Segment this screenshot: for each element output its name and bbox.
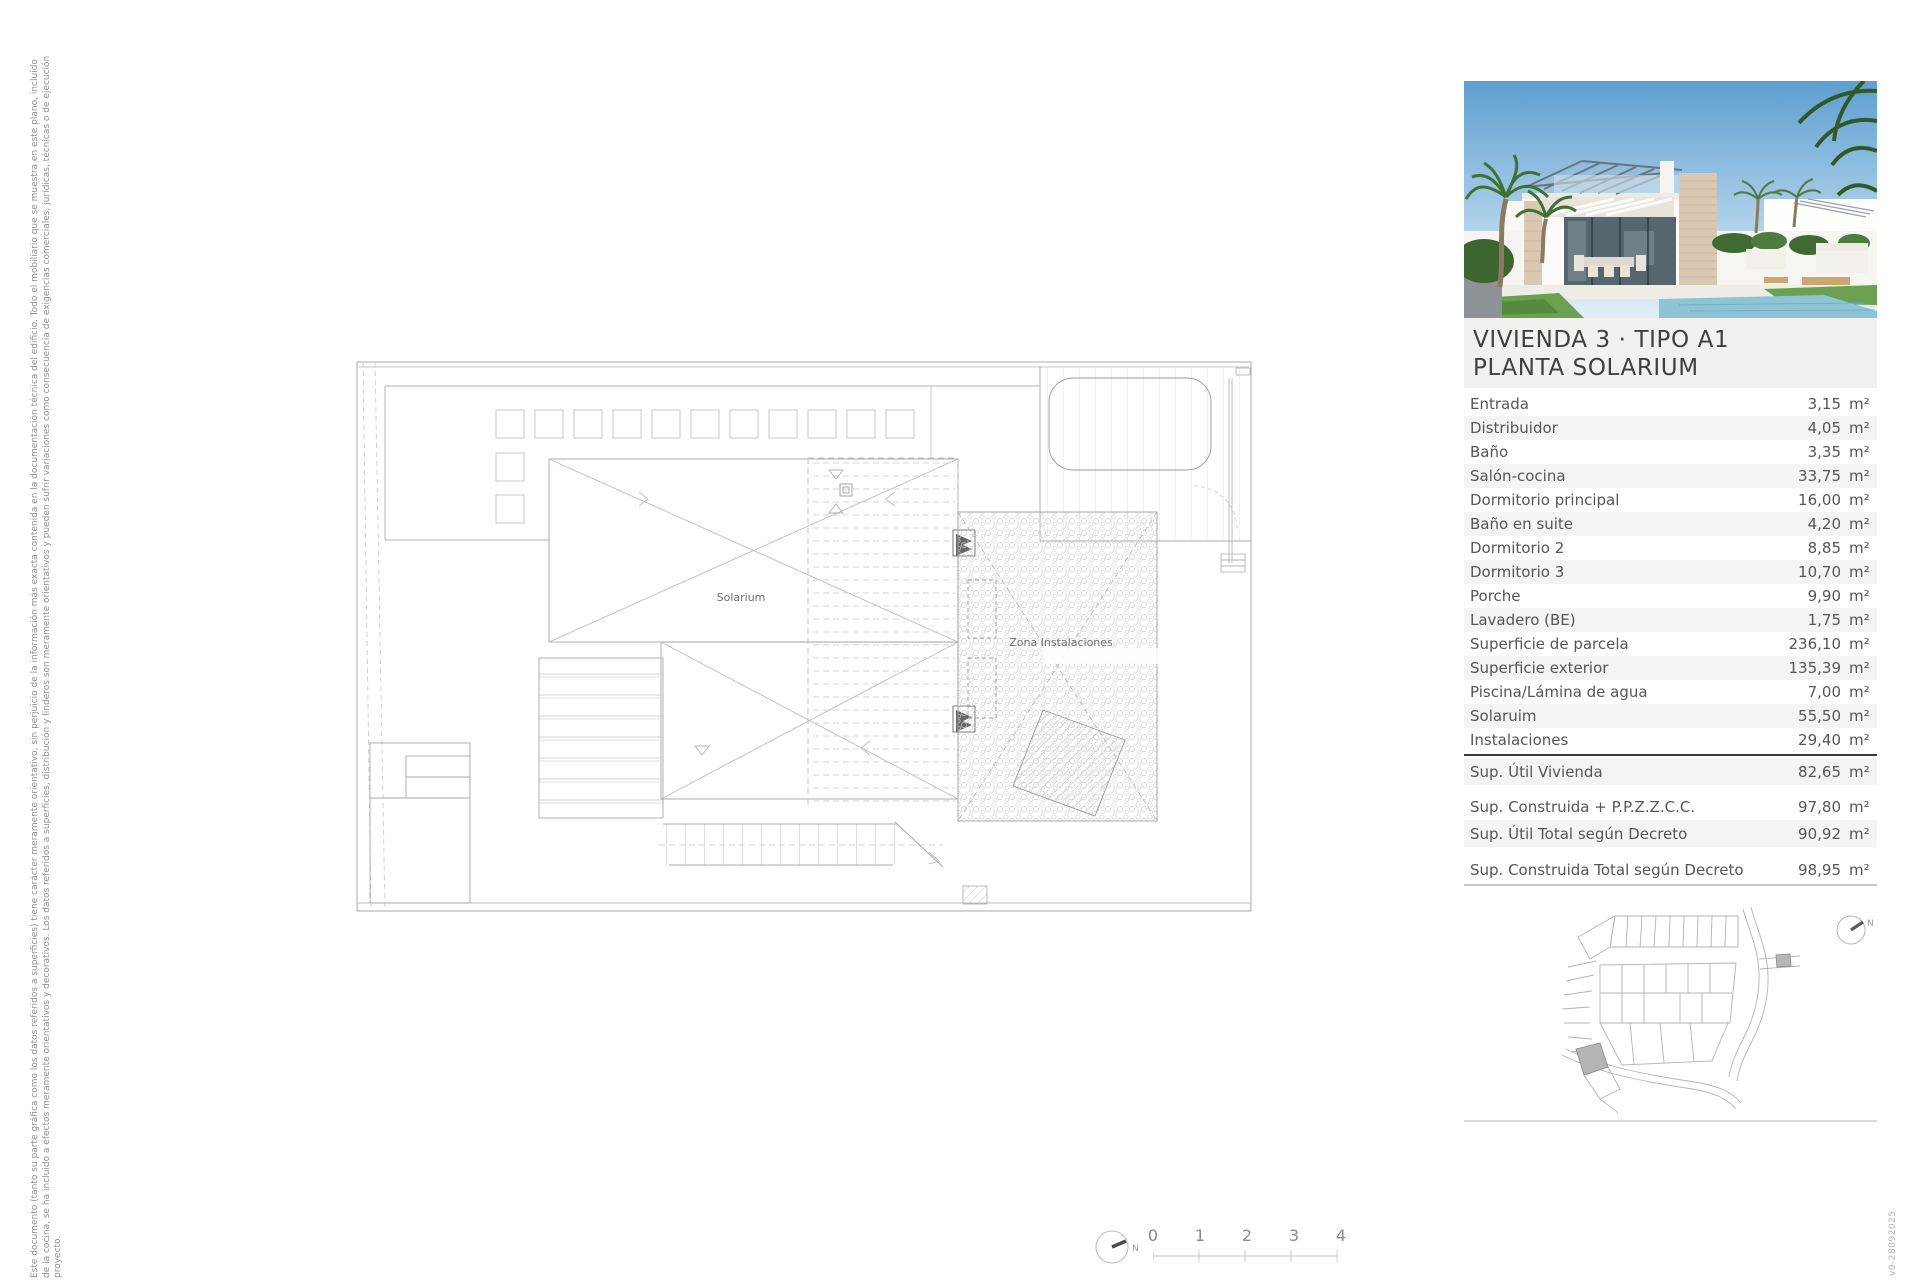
area-lbl: Sup. Construida + P.P.Z.Z.C.C.: [1470, 798, 1775, 816]
plan-title-block: VIVIENDA 3 · TIPO A1 PLANTA SOLARIUM: [1464, 318, 1877, 388]
north-compass-icon: N: [1837, 916, 1874, 944]
area-row: Baño3,35m²: [1464, 440, 1877, 464]
area-val: 3,15: [1775, 395, 1841, 413]
area-unit: m²: [1849, 861, 1873, 879]
area-lbl: Baño en suite: [1470, 515, 1775, 533]
area-val: 97,80: [1775, 798, 1841, 816]
plan-title-line2: PLANTA SOLARIUM: [1473, 354, 1877, 382]
side-louver-panel: [539, 658, 663, 818]
area-val: 16,00: [1775, 491, 1841, 509]
solarium-label: Solarium: [717, 591, 766, 604]
area-val: 135,39: [1775, 659, 1841, 677]
area-val: 4,20: [1775, 515, 1841, 533]
disclaimer-line: de la cocina, se ha incluido a efectos m…: [42, 4, 54, 1278]
area-row: Piscina/Lámina de agua7,00m²: [1464, 680, 1877, 704]
plan-title-line1: VIVIENDA 3 · TIPO A1: [1473, 326, 1877, 354]
area-row: Baño en suite4,20m²: [1464, 512, 1877, 536]
area-row: Instalaciones29,40m²: [1464, 728, 1877, 752]
area-unit: m²: [1849, 539, 1873, 557]
area-lbl: Solaruim: [1470, 707, 1775, 725]
drawing-version-label: v0-28092025: [1888, 1136, 1898, 1276]
area-val: 1,75: [1775, 611, 1841, 629]
area-lbl: Superficie exterior: [1470, 659, 1775, 677]
area-val: 9,90: [1775, 587, 1841, 605]
area-val: 55,50: [1775, 707, 1841, 725]
area-lbl: Dormitorio 2: [1470, 539, 1775, 557]
scale-tick-label: 4: [1329, 1226, 1353, 1245]
area-unit: m²: [1849, 635, 1873, 653]
area-unit: m²: [1849, 515, 1873, 533]
area-row: Dormitorio 28,85m²: [1464, 536, 1877, 560]
area-row: Dormitorio principal16,00m²: [1464, 488, 1877, 512]
staircase: [659, 822, 987, 904]
scale-tick-label: 1: [1188, 1226, 1212, 1245]
site-plan: N: [1560, 903, 1880, 1115]
area-lbl: Sup. Útil Total según Decreto: [1470, 825, 1775, 843]
area-unit: m²: [1849, 419, 1873, 437]
area-lbl: Dormitorio 3: [1470, 563, 1775, 581]
area-unit: m²: [1849, 707, 1873, 725]
storage-structure: [370, 743, 470, 903]
villa-render-photo: [1464, 81, 1877, 318]
area-val: 90,92: [1775, 825, 1841, 843]
area-row: Sup. Útil Vivienda82,65m²: [1464, 758, 1877, 785]
area-val: 29,40: [1775, 731, 1841, 749]
plan-sheet: Este documento (tanto su parte gráfica c…: [0, 0, 1920, 1280]
area-row: Sup. Construida + P.P.Z.Z.C.C.97,80m²: [1464, 793, 1877, 820]
area-val: 98,95: [1775, 861, 1841, 879]
area-row: Distribuidor4,05m²: [1464, 416, 1877, 440]
scale-bar: [1153, 1248, 1341, 1264]
area-lbl: Distribuidor: [1470, 419, 1775, 437]
area-unit: m²: [1849, 798, 1873, 816]
summary-table: Sup. Útil Vivienda82,65m²Sup. Construida…: [1464, 754, 1877, 883]
area-row: Porche9,90m²: [1464, 584, 1877, 608]
area-val: 3,35: [1775, 443, 1841, 461]
area-row: Lavadero (BE)1,75m²: [1464, 608, 1877, 632]
floor-plan-drawing: Solarium: [343, 358, 1263, 920]
panel-bottom-divider: [1464, 1120, 1877, 1122]
legal-disclaimer-text: Este documento (tanto su parte gráfica c…: [30, 4, 65, 1278]
area-row: Superficie exterior135,39m²: [1464, 656, 1877, 680]
area-lbl: Instalaciones: [1470, 731, 1775, 749]
area-lbl: Sup. Útil Vivienda: [1470, 763, 1775, 781]
north-compass-icon: N: [1092, 1226, 1148, 1268]
north-label: N: [1132, 1244, 1139, 1254]
area-lbl: Dormitorio principal: [1470, 491, 1775, 509]
area-unit: m²: [1849, 731, 1873, 749]
scale-bar-numbers: 01234: [1141, 1226, 1353, 1245]
area-unit: m²: [1849, 683, 1873, 701]
summary-bottom-rule: [1464, 884, 1877, 886]
area-unit: m²: [1849, 587, 1873, 605]
scale-tick-label: 2: [1235, 1226, 1259, 1245]
area-unit: m²: [1849, 563, 1873, 581]
area-lbl: Sup. Construida Total según Decreto: [1470, 861, 1775, 879]
area-lbl: Porche: [1470, 587, 1775, 605]
scale-tick-label: 0: [1141, 1226, 1165, 1245]
area-lbl: Piscina/Lámina de agua: [1470, 683, 1775, 701]
area-unit: m²: [1849, 611, 1873, 629]
area-row: Superficie de parcela236,10m²: [1464, 632, 1877, 656]
area-val: 236,10: [1775, 635, 1841, 653]
entrance-marker: [1776, 954, 1791, 967]
area-row: Solaruim55,50m²: [1464, 704, 1877, 728]
area-val: 82,65: [1775, 763, 1841, 781]
area-unit: m²: [1849, 659, 1873, 677]
area-lbl: Salón-cocina: [1470, 467, 1775, 485]
area-unit: m²: [1849, 491, 1873, 509]
area-val: 10,70: [1775, 563, 1841, 581]
area-val: 4,05: [1775, 419, 1841, 437]
area-row: Dormitorio 310,70m²: [1464, 560, 1877, 584]
area-unit: m²: [1849, 825, 1873, 843]
north-label: N: [1867, 919, 1874, 929]
area-row: Sup. Construida Total según Decreto98,95…: [1464, 856, 1877, 883]
scale-tick-label: 3: [1282, 1226, 1306, 1245]
louver-strip: [639, 458, 975, 805]
area-row: Entrada3,15m²: [1464, 392, 1877, 416]
area-val: 8,85: [1775, 539, 1841, 557]
disclaimer-line: Este documento (tanto su parte gráfica c…: [30, 4, 42, 1278]
installations-zone: Zona Instalaciones: [958, 512, 1213, 821]
area-lbl: Superficie de parcela: [1470, 635, 1775, 653]
area-row: Sup. Útil Total según Decreto90,92m²: [1464, 820, 1877, 847]
installations-label: Zona Instalaciones: [1009, 636, 1113, 649]
area-unit: m²: [1849, 395, 1873, 413]
areas-table: Entrada3,15m²Distribuidor4,05m²Baño3,35m…: [1464, 392, 1877, 752]
area-val: 7,00: [1775, 683, 1841, 701]
disclaimer-line: proyecto.: [53, 4, 65, 1278]
area-lbl: Entrada: [1470, 395, 1775, 413]
area-unit: m²: [1849, 443, 1873, 461]
area-lbl: Lavadero (BE): [1470, 611, 1775, 629]
area-lbl: Baño: [1470, 443, 1775, 461]
area-unit: m²: [1849, 467, 1873, 485]
area-row: Salón-cocina33,75m²: [1464, 464, 1877, 488]
area-val: 33,75: [1775, 467, 1841, 485]
area-unit: m²: [1849, 763, 1873, 781]
